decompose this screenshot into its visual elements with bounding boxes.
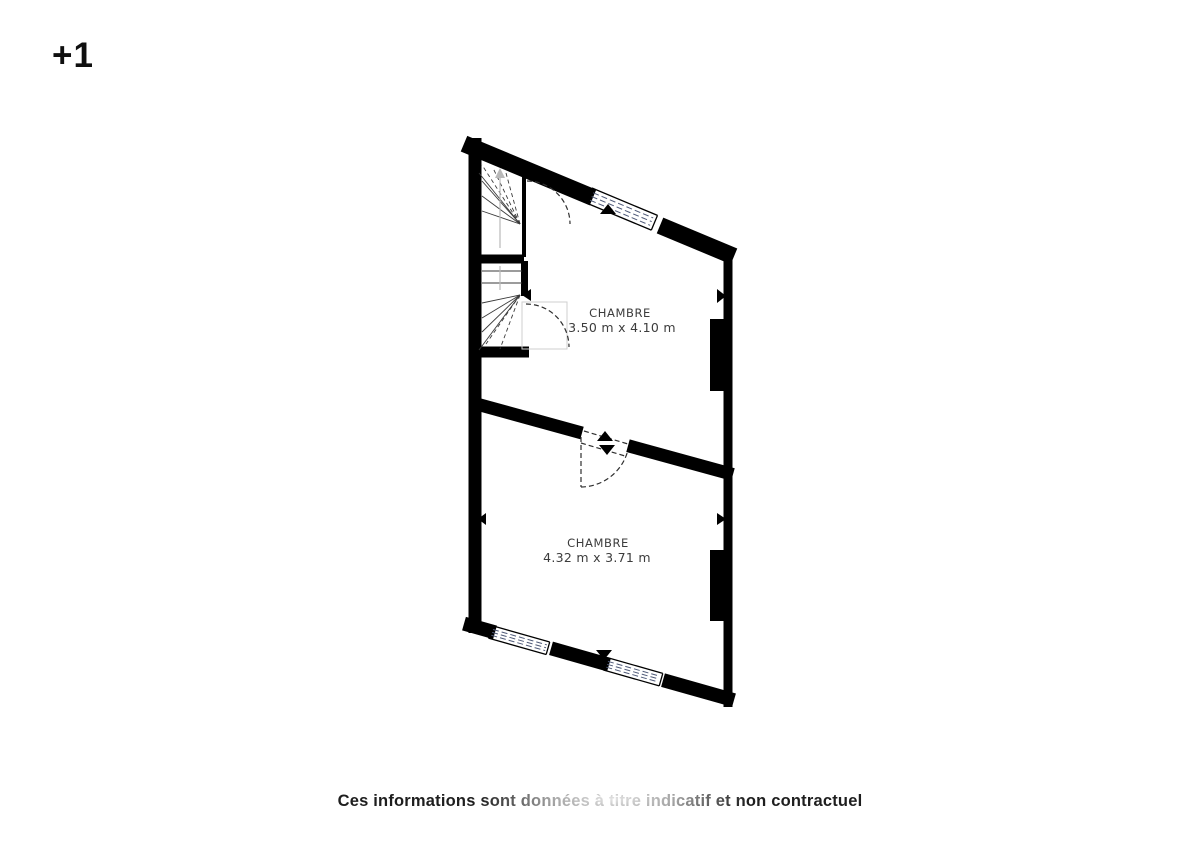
window-bottom-left xyxy=(488,626,549,655)
window-edge xyxy=(592,188,658,215)
stair-straight-treads xyxy=(482,271,522,283)
stair-bottom-door-arc xyxy=(526,304,569,347)
chimney-lower xyxy=(710,550,728,621)
chimney-upper xyxy=(710,319,727,391)
window-top xyxy=(586,188,658,230)
walking-line-arrow xyxy=(495,168,505,178)
room-1-dimensions: 3.50 m x 4.10 m xyxy=(568,320,676,335)
dividing-wall-left-segment xyxy=(473,403,582,433)
stair-bottom-door-leaf xyxy=(522,302,567,349)
window-edge xyxy=(492,626,550,642)
room-labels: CHAMBRE 3.50 m x 4.10 m CHAMBRE 4.32 m x… xyxy=(543,306,676,565)
window-glazing xyxy=(607,664,659,679)
dividing-wall-right-segment xyxy=(628,446,733,475)
window-edge xyxy=(607,658,663,674)
window-edge xyxy=(546,642,550,655)
window-glazing xyxy=(491,635,545,650)
window-glazing xyxy=(493,630,547,645)
room-1-name: CHAMBRE xyxy=(589,306,651,320)
window-edge xyxy=(586,203,652,230)
arrow-room-door-down xyxy=(599,445,615,455)
room-2-dimensions: 4.32 m x 3.71 m xyxy=(543,550,651,565)
room-door-arc xyxy=(581,450,628,487)
disclaimer-text: Ces informations sont données à titre in… xyxy=(0,792,1200,811)
room-2-name: CHAMBRE xyxy=(567,536,629,550)
window-bottom-right xyxy=(603,658,662,686)
floor-plan: CHAMBRE 3.50 m x 4.10 m CHAMBRE 4.32 m x… xyxy=(0,0,1200,849)
stair-walking-line xyxy=(495,168,505,290)
wall-bottom-segment-3 xyxy=(663,680,734,700)
floorplan-page: +1 xyxy=(0,0,1200,849)
stair-lower-flight xyxy=(479,295,520,350)
wall-top-left-segment xyxy=(464,144,593,198)
direction-arrows xyxy=(478,204,726,660)
window-edge xyxy=(488,638,546,654)
window-glazing xyxy=(492,632,546,647)
wall-top-right-segment xyxy=(660,226,734,257)
window-edge xyxy=(603,670,659,686)
exterior-walls xyxy=(464,138,734,707)
